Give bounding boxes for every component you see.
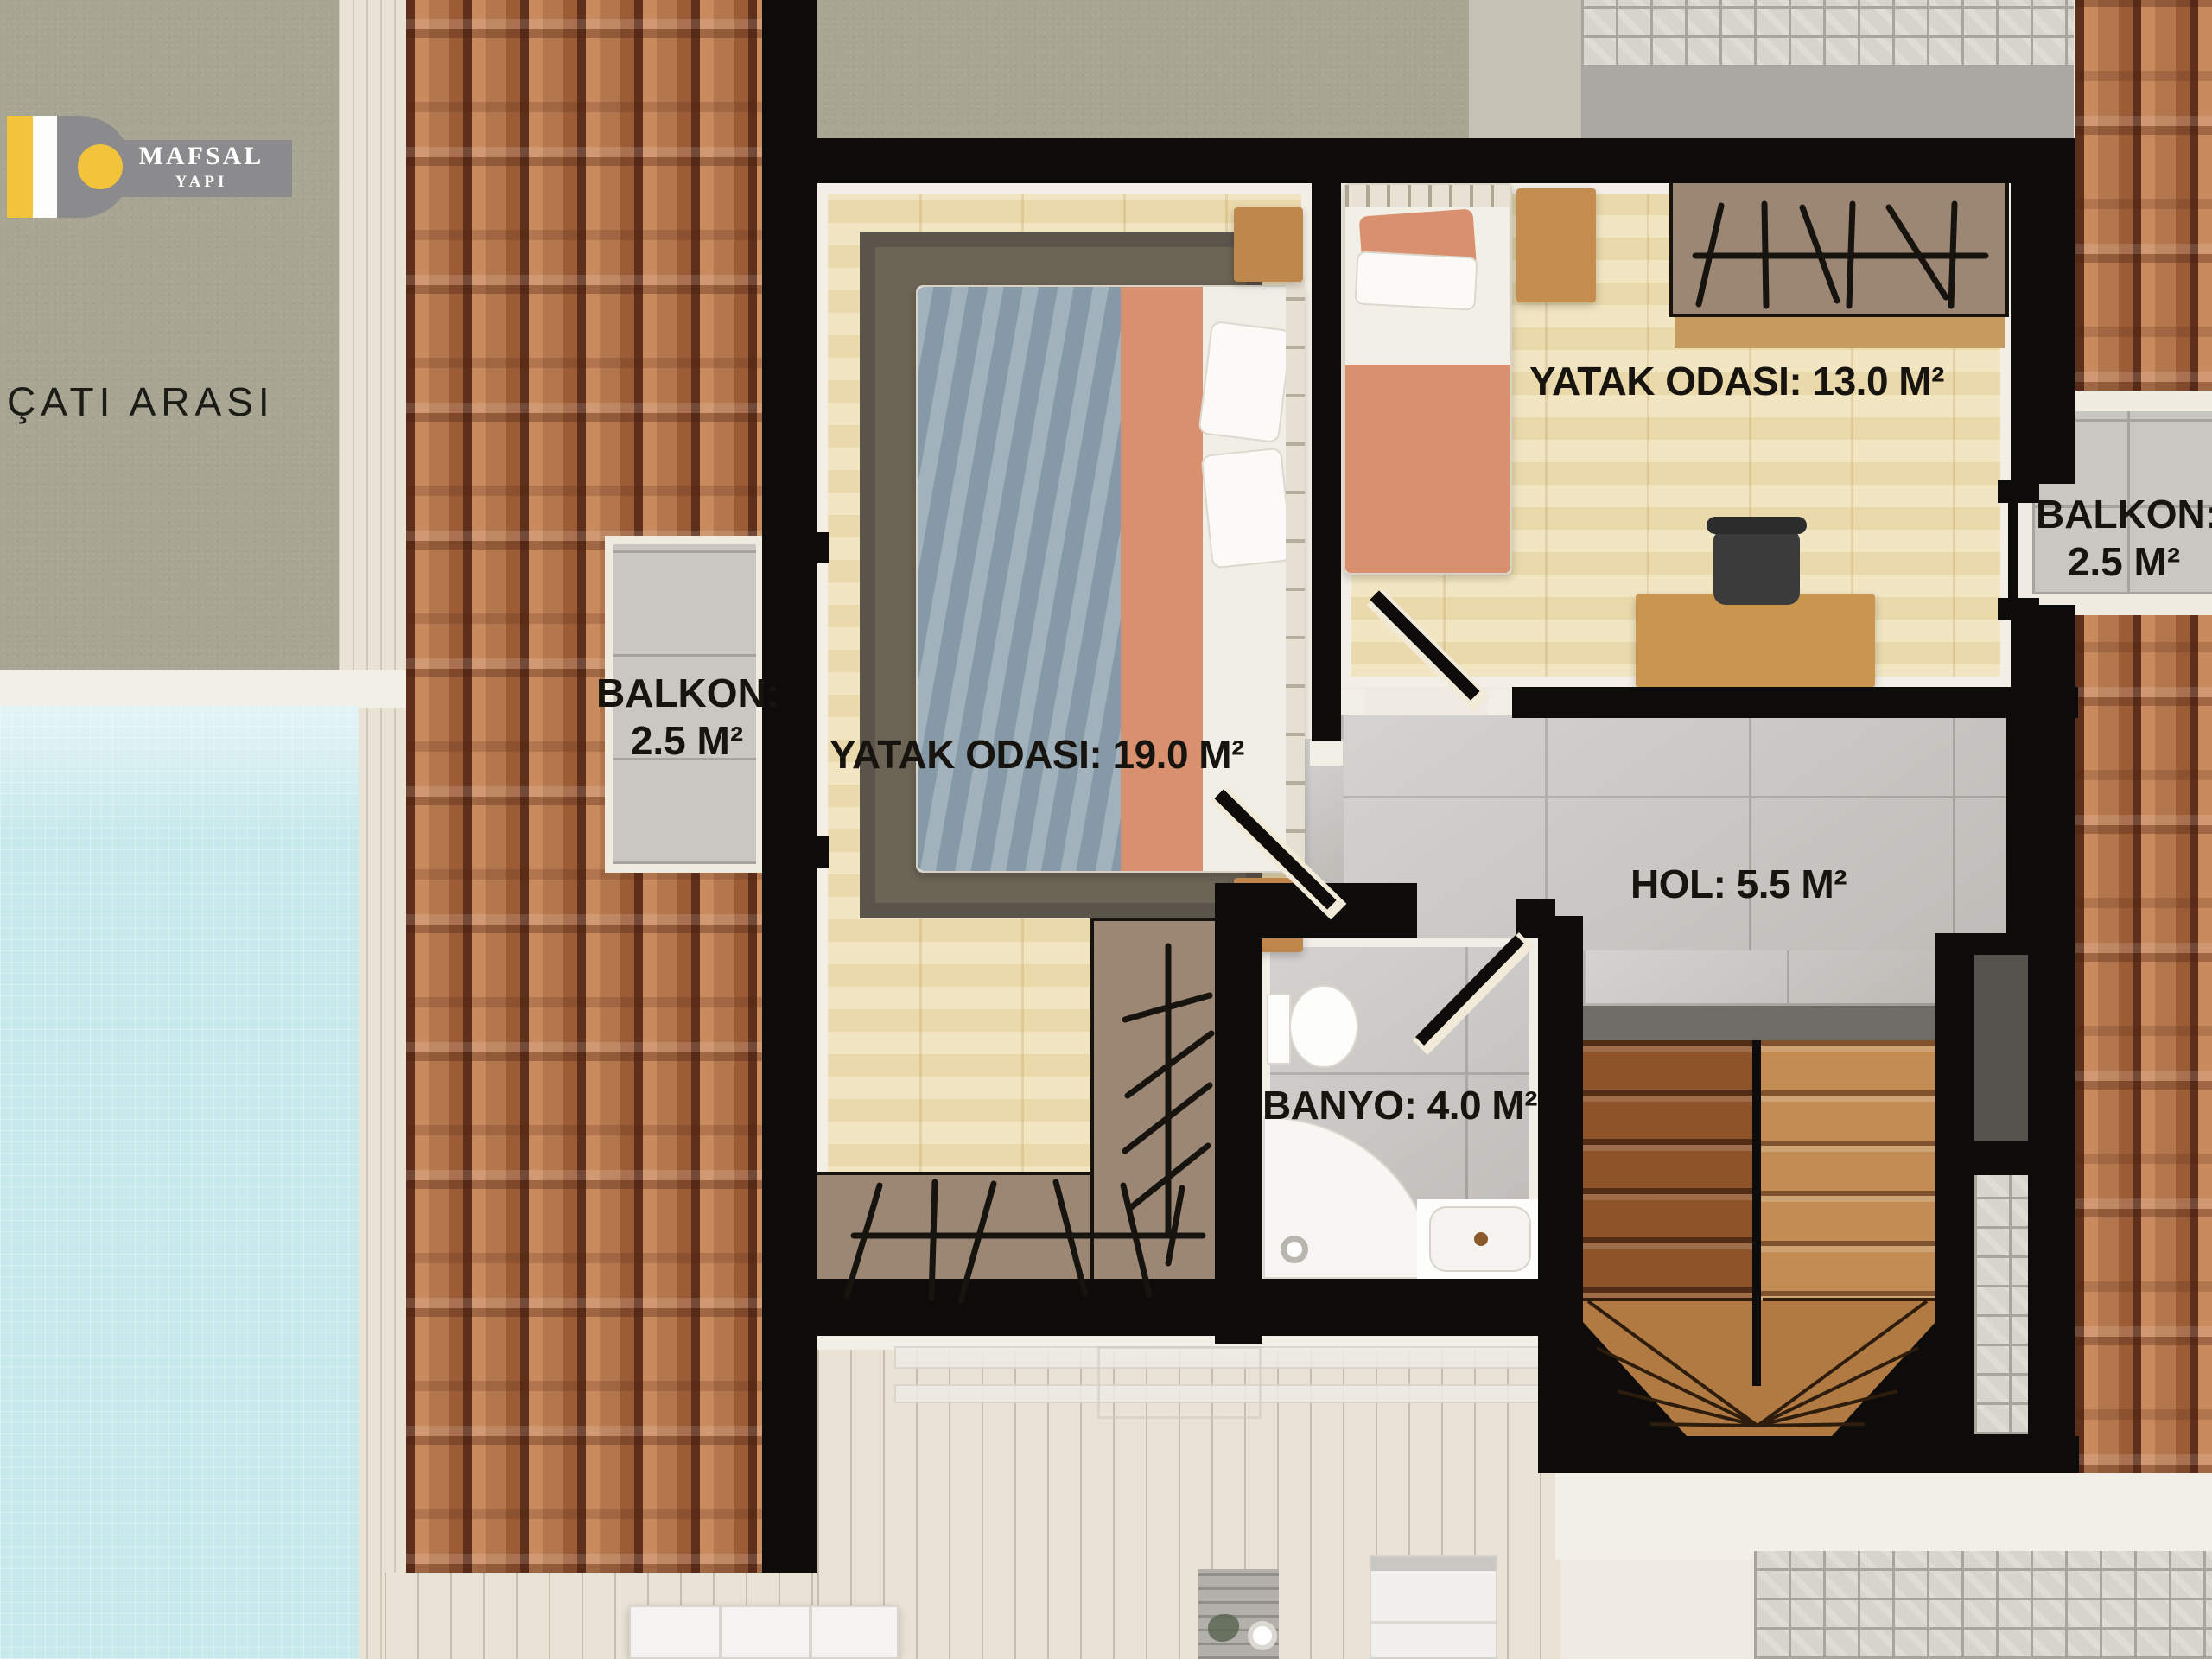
- brand-subtitle: YAPI: [111, 173, 292, 192]
- double-bed: [916, 285, 1305, 873]
- south-wall: [817, 1279, 1564, 1336]
- stair-west-wall: [1552, 933, 1583, 1473]
- sink-drain: [1474, 1232, 1488, 1246]
- outdoor-sofa: [1370, 1555, 1497, 1659]
- logo-dot: [78, 144, 123, 189]
- toilet: [1267, 994, 1291, 1065]
- headboard: [1345, 185, 1510, 207]
- east-wall-lower: [2011, 605, 2075, 717]
- blanket-stripe: [1121, 287, 1203, 871]
- partition-wall: [1312, 183, 1341, 743]
- stair-niche: [1974, 1175, 2028, 1434]
- stair-stringer: [1752, 1040, 1761, 1386]
- wall-stub: [1215, 883, 1417, 938]
- brand-name: MAFSAL: [111, 140, 292, 173]
- sliding-door: [805, 553, 816, 855]
- roof-tiles-right-lower: [2075, 615, 2212, 1473]
- attic-area: [0, 0, 339, 672]
- desk: [1636, 594, 1875, 687]
- roof-top-gray2: [1581, 67, 2074, 140]
- pool: [0, 706, 359, 1659]
- wardrobe: [1669, 168, 2009, 317]
- pool-deck-edge: [0, 670, 406, 708]
- cobblestone-path: [1754, 1551, 2212, 1659]
- balcony-left-label: BALKON: 2.5 M²: [596, 670, 778, 765]
- pillow: [1198, 321, 1292, 443]
- stair-flight-right: [1761, 1040, 1935, 1300]
- logo-white-bar: [33, 116, 57, 218]
- east-wall-upper: [2011, 138, 2075, 484]
- logo-banner: MAFSAL YAPI: [111, 140, 292, 197]
- sliding-door-cap: [793, 836, 829, 868]
- stair-landing-tiles: [1583, 950, 1935, 1006]
- bedroom-small-south-wall: [1512, 687, 2078, 718]
- stair-flight-left: [1583, 1040, 1752, 1300]
- hall-label: HOL: 5.5 M²: [1540, 861, 1937, 907]
- floor-plan-canvas: ÇATI ARASI YATAK ODASI: 19.0 M² YATAK OD…: [0, 0, 2212, 1659]
- balcony-left-line2: 2.5 M²: [596, 717, 778, 765]
- headboard: [1286, 276, 1305, 881]
- sliding-door-cap: [1998, 598, 2039, 620]
- wardrobe-front: [1675, 317, 2005, 348]
- sliding-door: [2008, 499, 2018, 601]
- roof-top-gray: [1469, 0, 1581, 140]
- cobblestone-top: [1581, 0, 2074, 67]
- outdoor-cabinet: [629, 1605, 899, 1659]
- roof-top-strip: [817, 0, 1469, 140]
- toilet: [1289, 985, 1358, 1068]
- office-chair: [1707, 517, 1807, 534]
- door-frame: [1310, 741, 1343, 766]
- sliding-door-cap: [1998, 480, 2039, 503]
- roof-tiles-right-upper: [2075, 0, 2212, 391]
- balcony-right-line2: 2.5 M²: [2036, 538, 2212, 586]
- bathroom-label: BANYO: 4.0 M²: [1236, 1082, 1564, 1128]
- patio-south-east: [1555, 1473, 2212, 1560]
- hall-east-wall: [2006, 715, 2075, 933]
- pillow: [1200, 447, 1293, 569]
- brand-logo: MAFSAL YAPI: [7, 102, 294, 233]
- nightstand: [1516, 188, 1596, 302]
- balcony-left-line1: BALKON:: [596, 670, 778, 717]
- office-chair: [1713, 529, 1800, 605]
- bedroom-small-label: YATAK ODASI: 13.0 M²: [1469, 358, 2005, 404]
- vase: [1248, 1621, 1277, 1650]
- stair-south-wall: [1552, 1436, 2079, 1473]
- balcony-right-line1: BALKON:: [2036, 491, 2212, 538]
- stair-niche-shaft: [1974, 955, 2028, 1141]
- skylight-frame: [1097, 1346, 1262, 1419]
- closet: [1090, 918, 1215, 1279]
- sliding-door-cap: [793, 532, 829, 563]
- bedroom-large-label: YATAK ODASI: 19.0 M²: [804, 731, 1270, 778]
- shower-drain: [1281, 1236, 1308, 1263]
- nightstand: [1234, 207, 1303, 282]
- attic-label: ÇATI ARASI: [7, 378, 275, 425]
- door-frame: [1341, 690, 1365, 715]
- balcony-right-label: BALKON: 2.5 M²: [2036, 491, 2212, 586]
- door-frame: [1488, 690, 1512, 715]
- pillow: [1354, 251, 1478, 310]
- logo-accent-bar: [7, 116, 33, 218]
- top-wall: [762, 138, 2075, 183]
- stair-landing: [1583, 1006, 1935, 1040]
- duvet: [918, 287, 1121, 871]
